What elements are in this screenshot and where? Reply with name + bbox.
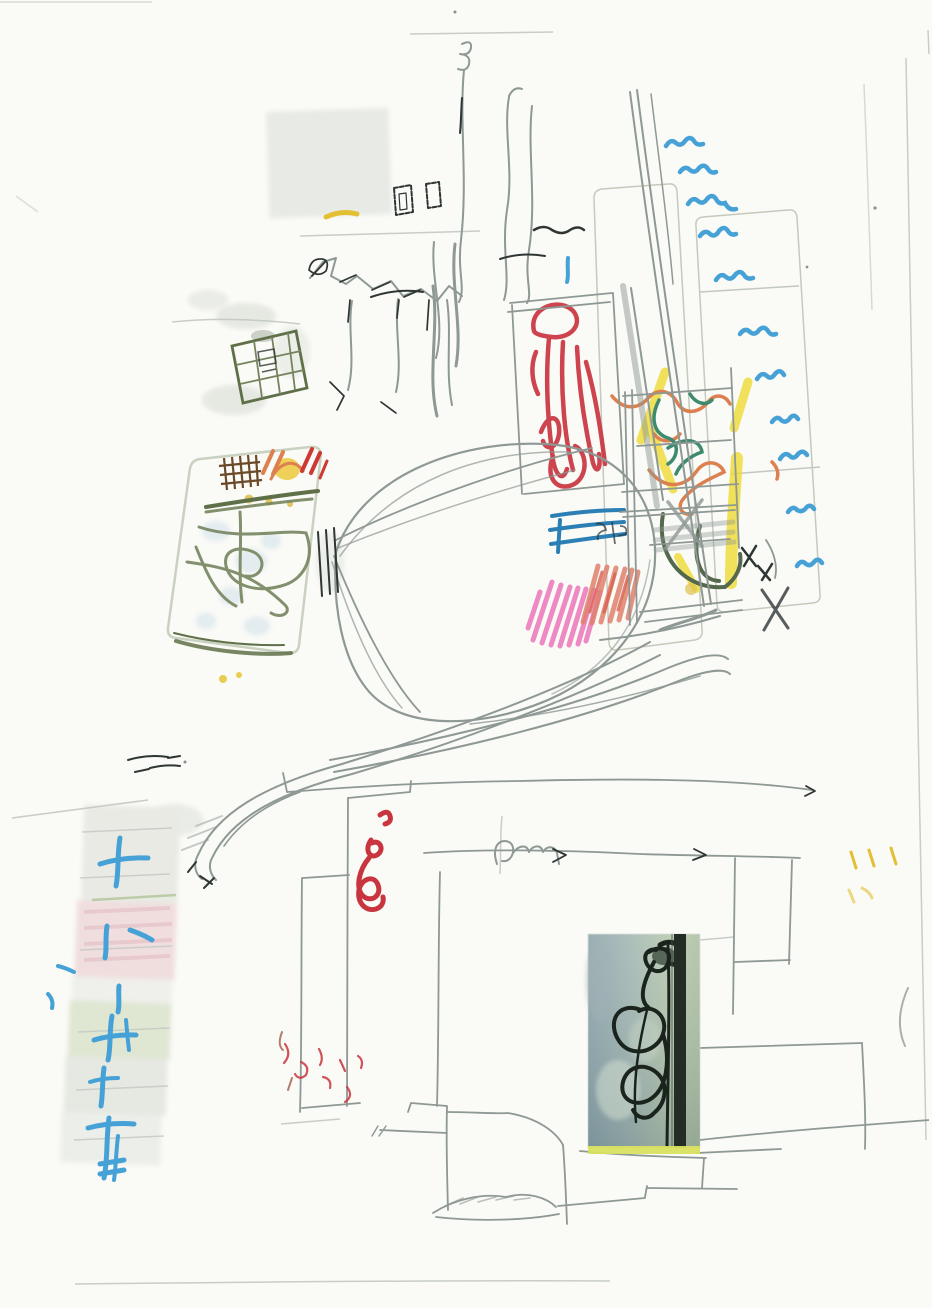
graphite-block [266,108,392,218]
photo-dark-post [674,934,686,1148]
scanned-artwork-page [0,0,932,1308]
mustard-dot [685,583,697,595]
scanned-sketch-canvas [0,0,932,1308]
blue-tick [567,258,568,282]
photo-yellow-strip [588,1146,700,1154]
pasted-photo [586,934,700,1154]
